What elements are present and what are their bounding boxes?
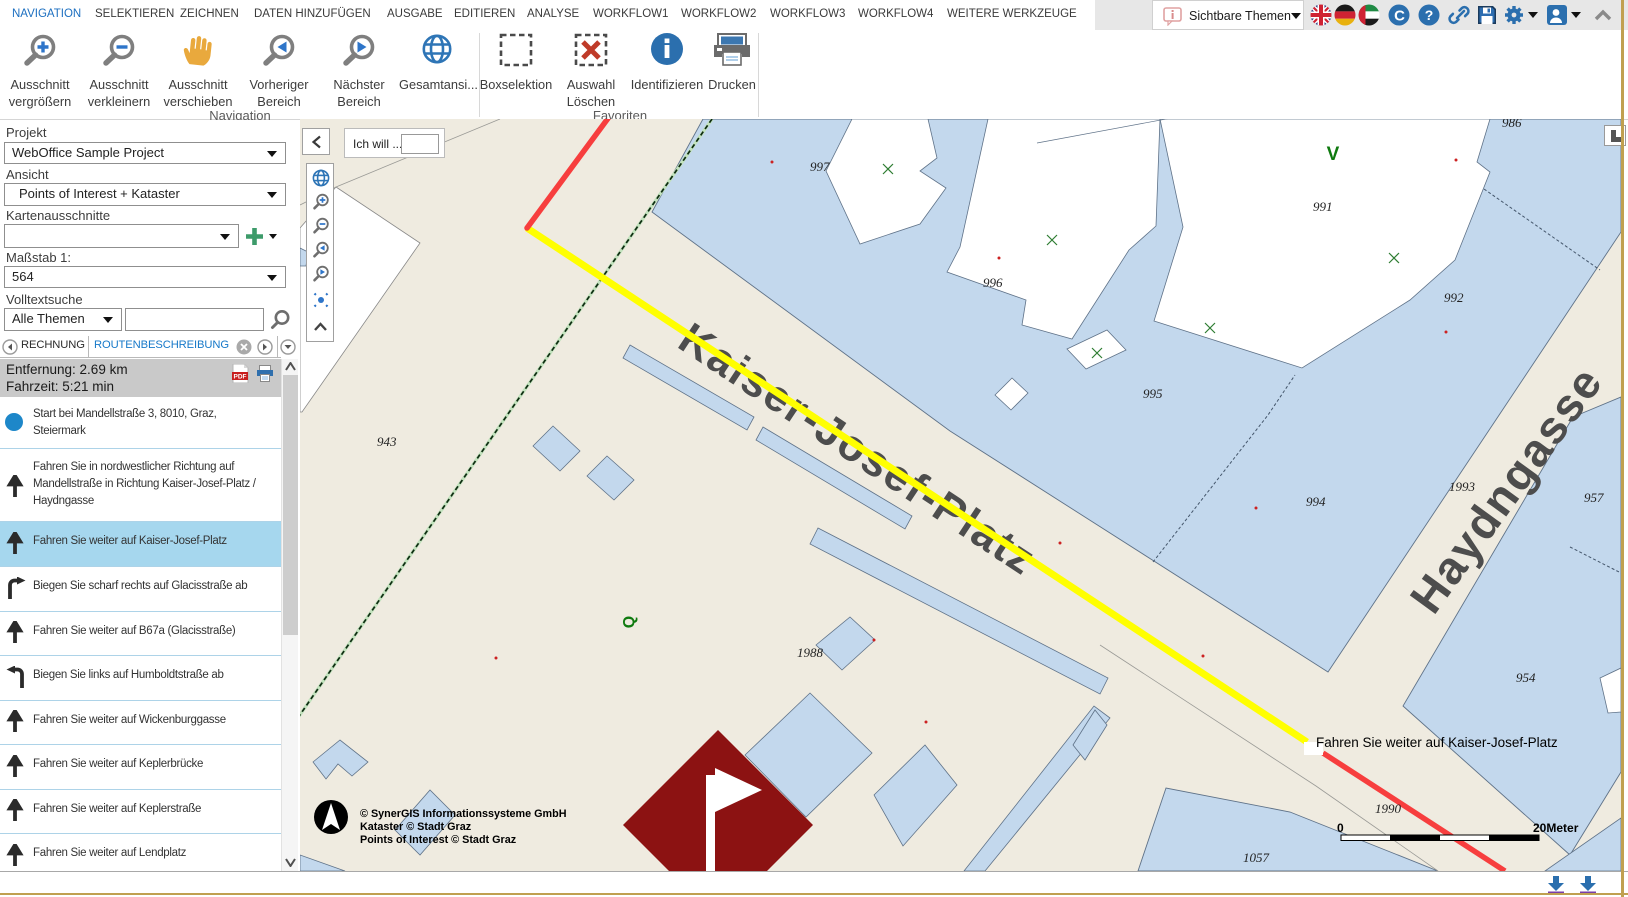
svg-text:954: 954: [1516, 670, 1536, 685]
svg-text:Q: Q: [621, 616, 638, 628]
svg-text:991: 991: [1313, 199, 1333, 214]
svg-text:Kataster © Stadt Graz: Kataster © Stadt Graz: [360, 821, 472, 833]
svg-text:994: 994: [1306, 494, 1326, 509]
svg-text:V: V: [1327, 144, 1340, 165]
svg-text:1993: 1993: [1449, 479, 1476, 494]
svg-text:943: 943: [377, 434, 397, 449]
svg-text:0: 0: [1337, 821, 1344, 835]
svg-text:957: 957: [1584, 490, 1604, 505]
svg-text:997: 997: [810, 159, 830, 174]
svg-text:Fahren Sie weiter auf Kaiser-J: Fahren Sie weiter auf Kaiser-Josef-Platz: [1316, 735, 1558, 750]
svg-text:PDF: PDF: [234, 374, 247, 381]
svg-text:992: 992: [1444, 290, 1464, 305]
svg-text:?: ?: [1425, 7, 1434, 23]
svg-text:Points of Interest © Stadt Gra: Points of Interest © Stadt Graz: [360, 834, 517, 846]
svg-text:C: C: [1394, 8, 1405, 25]
svg-text:1057: 1057: [1243, 850, 1270, 865]
svg-text:995: 995: [1143, 386, 1163, 401]
svg-text:1990: 1990: [1375, 801, 1402, 816]
svg-text:1988: 1988: [797, 645, 824, 660]
svg-text:20Meter: 20Meter: [1533, 821, 1579, 835]
svg-text:© SynerGIS Informationssysteme: © SynerGIS Informationssysteme GmbH: [360, 808, 567, 820]
svg-text:986: 986: [1502, 119, 1522, 130]
svg-text:996: 996: [983, 275, 1003, 290]
